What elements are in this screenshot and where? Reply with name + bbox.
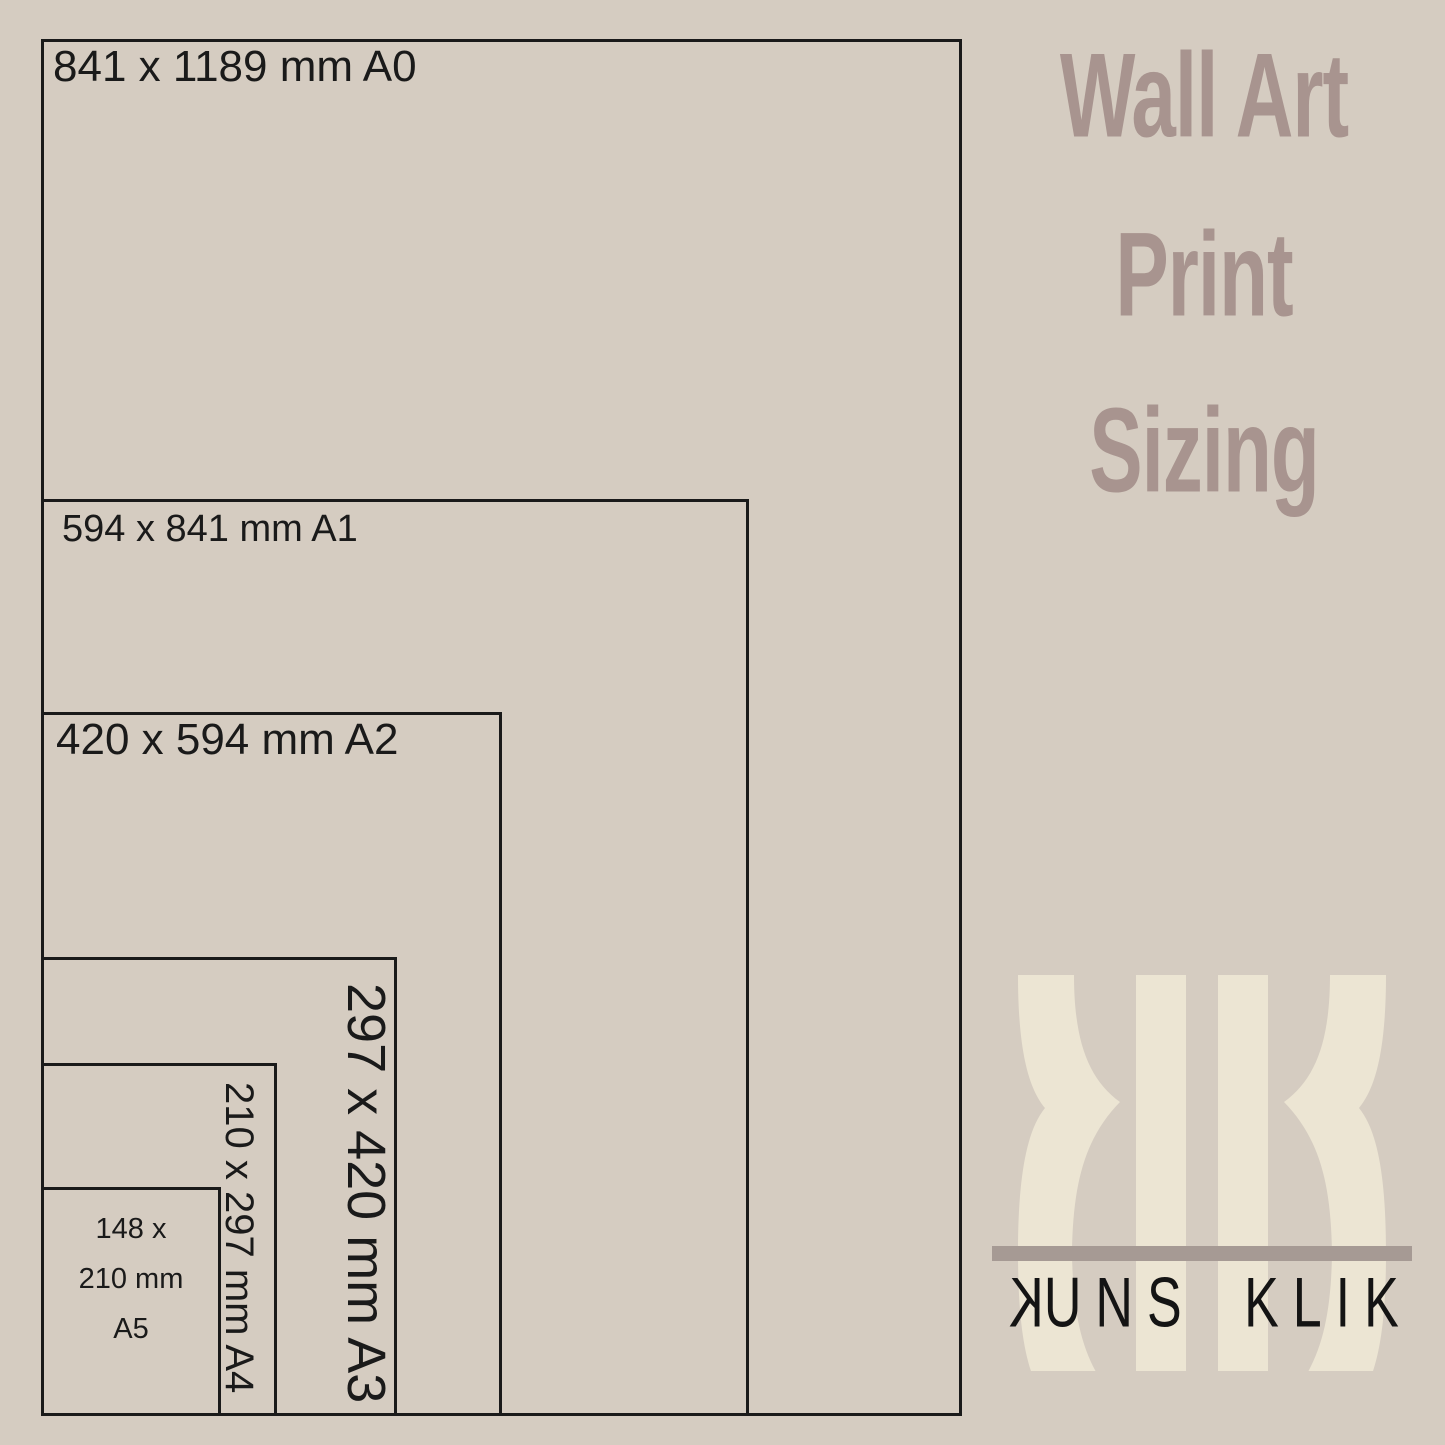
- size-label-a1: 594 x 841 mm A1: [62, 509, 358, 550]
- page-title-line-3: Sizing: [963, 391, 1445, 511]
- size-label-a2: 420 x 594 mm A2: [56, 716, 398, 764]
- page-title-line-1: Wall Art: [963, 36, 1445, 156]
- size-label-a3: 297 x 420 mm A3: [340, 983, 392, 1403]
- size-label-a5-line3: A5: [113, 1313, 148, 1345]
- brand-name: KUNS KLIK: [963, 1263, 1445, 1344]
- wall-art-print-sizing-infographic: 841 x 1189 mm A0 594 x 841 mm A1 420 x 5…: [0, 0, 1445, 1445]
- brand-first-letter-mirrored: K: [995, 1263, 1044, 1344]
- page-title-line-2: Print: [963, 215, 1445, 335]
- k-letter-icon: [1218, 975, 1386, 1253]
- size-label-a0: 841 x 1189 mm A0: [53, 43, 417, 91]
- k-letter-mirrored-icon: [1018, 975, 1186, 1253]
- kk-monogram-letters: [1018, 975, 1386, 1253]
- brand-name-rest: UNS KLIK: [1044, 1264, 1413, 1342]
- size-label-a5-line1: 148 x: [96, 1213, 167, 1245]
- size-label-a5: 148 x 210 mm A5: [41, 1204, 221, 1354]
- size-label-a4: 210 x 297 mm A4: [218, 1082, 259, 1393]
- logo-divider-bar: [992, 1246, 1412, 1261]
- size-label-a5-line2: 210 mm: [79, 1263, 184, 1295]
